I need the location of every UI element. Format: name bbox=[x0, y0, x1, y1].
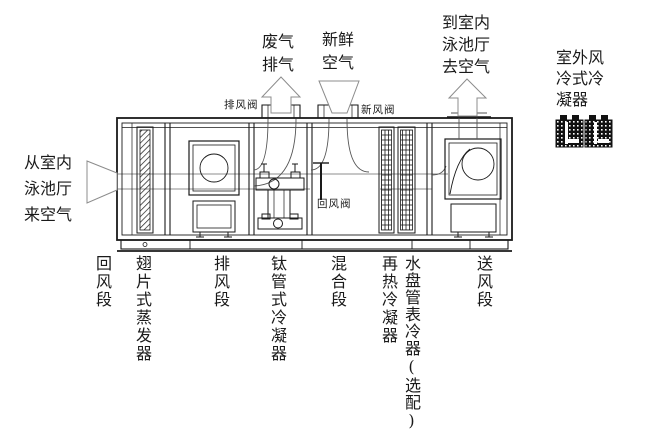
section-label-mixing: 混合段 bbox=[325, 255, 349, 309]
section-label-water-coil: 水盘管表冷器(选配) bbox=[399, 255, 423, 431]
supply-air-arrow bbox=[449, 79, 486, 116]
supply-fan-assembly bbox=[432, 139, 501, 237]
inlet-funnel bbox=[87, 161, 117, 203]
from-pool-label: 从室内 泳池厅 来空气 bbox=[24, 150, 86, 228]
section-label-reheat-condenser: 再热冷凝器 bbox=[376, 255, 400, 345]
section-label-titanium-condenser: 钛管式冷凝器 bbox=[265, 255, 289, 363]
section-label-return-air: 回风段 bbox=[90, 255, 114, 309]
ahu-diagram: 从室内 泳池厅 来空气 废气 排气 新鲜 空气 到室内 泳池厅 去空气 室外风 … bbox=[0, 0, 647, 446]
section-label-supply-fan: 送风段 bbox=[471, 255, 495, 309]
outdoor-condenser-label: 室外风 冷式冷 凝器 bbox=[556, 47, 616, 110]
unit-casing bbox=[117, 118, 512, 240]
evaporator-hatch-panel bbox=[137, 127, 153, 233]
return-air-damper-label: 回风阀 bbox=[317, 198, 352, 210]
fresh-air-label: 新鲜 空气 bbox=[314, 28, 362, 74]
waste-exhaust-label: 废气 排气 bbox=[252, 30, 304, 76]
section-label-finned-evaporator: 翅片式蒸发器 bbox=[130, 255, 154, 363]
fresh-air-duct-arcs bbox=[311, 119, 369, 172]
exhaust-damper-label: 排风阀 bbox=[224, 99, 259, 111]
reheat-coil-panel bbox=[379, 127, 394, 233]
section-label-exhaust-fan: 排风段 bbox=[208, 255, 232, 309]
fresh-air-funnel bbox=[319, 81, 359, 113]
to-pool-label: 到室内 泳池厅 去空气 bbox=[436, 12, 496, 78]
outdoor-condenser-icon bbox=[556, 115, 612, 147]
return-air-damper-symbol bbox=[313, 163, 329, 200]
fresh-air-damper-label: 新风阀 bbox=[361, 104, 396, 116]
water-coil-panel bbox=[398, 127, 415, 233]
unit-base bbox=[117, 240, 512, 251]
